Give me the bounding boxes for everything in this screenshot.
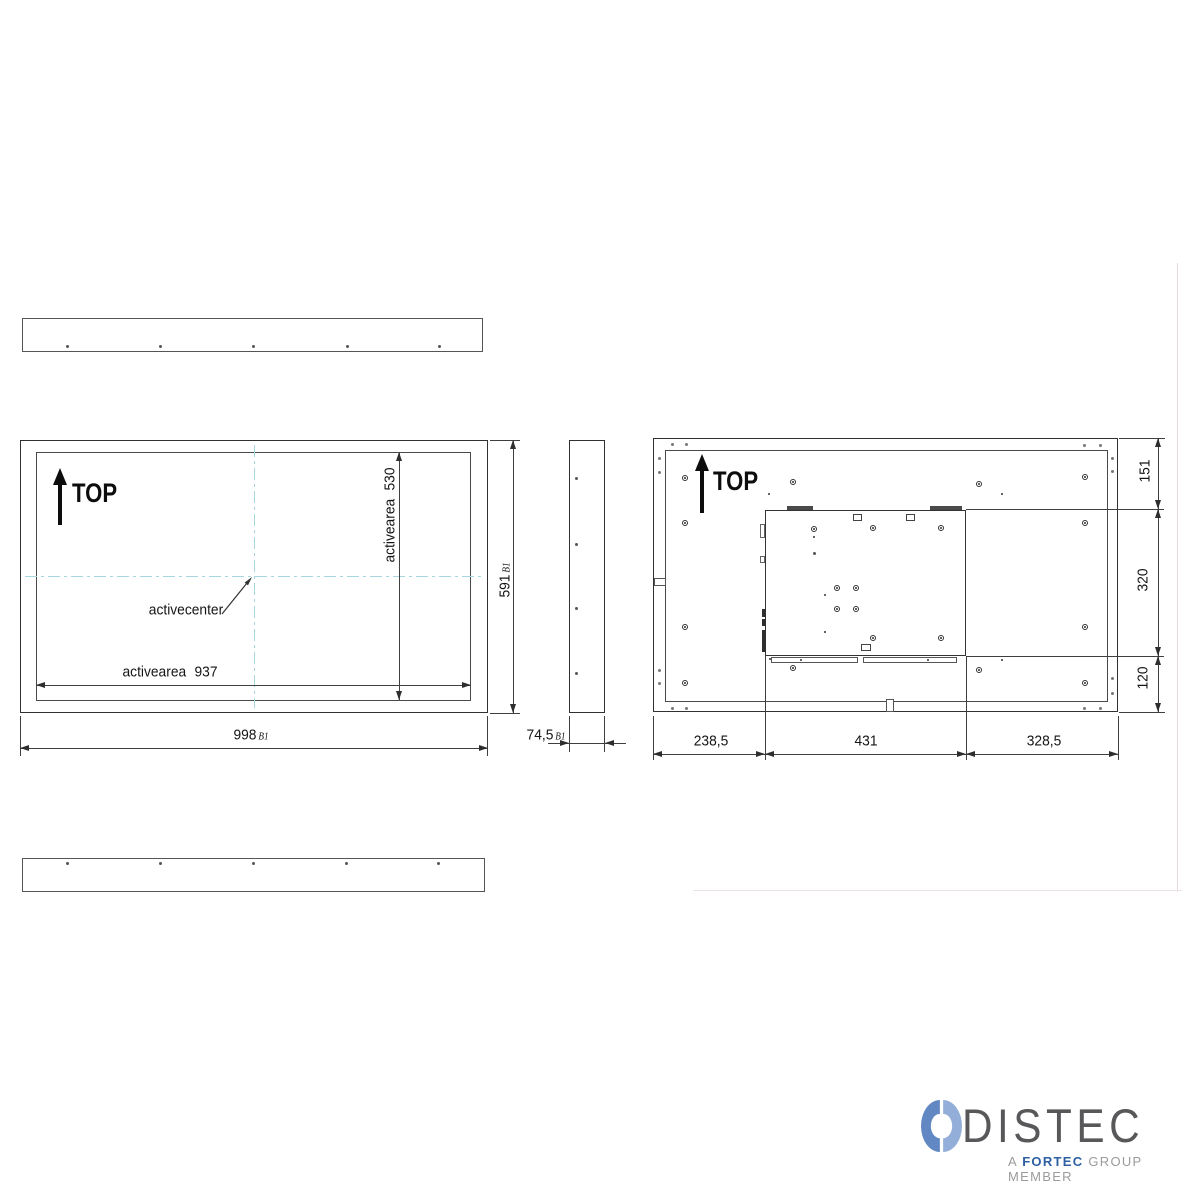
rim-screw-hole bbox=[658, 669, 661, 672]
back-left-edge-notch bbox=[654, 578, 666, 586]
dim-back-bottom-238: 238,5 bbox=[694, 733, 729, 750]
dimension-arrow bbox=[396, 691, 402, 700]
dimension-arrow bbox=[1155, 509, 1161, 518]
tagline-a: A bbox=[1008, 1154, 1017, 1169]
screw-hole bbox=[938, 635, 944, 641]
box-hinge-bar-left bbox=[787, 506, 813, 510]
distec-logo-text: DISTEC bbox=[962, 1102, 1144, 1149]
box-bottom-rail-left bbox=[771, 657, 858, 663]
screw-hole bbox=[976, 667, 982, 673]
faint-horizontal-line bbox=[693, 890, 1182, 891]
rim-screw-hole bbox=[1083, 707, 1086, 710]
screw-hole bbox=[870, 525, 876, 531]
screw-hole bbox=[853, 585, 859, 591]
back-top-label: TOP bbox=[713, 468, 758, 495]
screw-hole bbox=[682, 475, 688, 481]
distec-logo-icon bbox=[921, 1100, 962, 1152]
rim-screw-hole bbox=[671, 443, 674, 446]
rim-screw-hole bbox=[658, 457, 661, 460]
dimension-arrow bbox=[1155, 656, 1161, 665]
dimension-arrow bbox=[1155, 647, 1161, 656]
dimension-arrow bbox=[396, 452, 402, 461]
back-top-arrow-shaft bbox=[700, 470, 704, 513]
mounting-hole bbox=[66, 345, 69, 348]
dimension-line bbox=[966, 656, 1164, 657]
dimension-arrow bbox=[36, 682, 45, 688]
box-connector-3 bbox=[762, 609, 766, 617]
dimension-arrow bbox=[653, 751, 662, 757]
screw-hole bbox=[1082, 474, 1088, 480]
dim-back-right-320: 320 bbox=[1135, 568, 1152, 591]
dimension-line bbox=[1118, 716, 1119, 760]
box-connector-5 bbox=[762, 630, 766, 652]
screw-hole bbox=[938, 525, 944, 531]
rim-screw-hole bbox=[1111, 470, 1114, 473]
dimension-line bbox=[569, 716, 570, 752]
dim-front-width: 998B1 bbox=[233, 727, 268, 744]
dimension-line bbox=[966, 656, 967, 760]
dimension-arrow bbox=[756, 751, 765, 757]
screw-hole bbox=[790, 479, 796, 485]
dim-back-right-151: 151 bbox=[1137, 459, 1154, 482]
dimension-line bbox=[966, 509, 1164, 510]
screw-hole bbox=[811, 526, 817, 532]
dimension-arrow bbox=[1109, 751, 1118, 757]
dimension-line bbox=[604, 716, 605, 752]
dim-back-bottom-328: 328,5 bbox=[1027, 733, 1062, 750]
box-hinge-bar-right bbox=[930, 506, 962, 510]
front-top-arrow-shaft bbox=[58, 484, 62, 525]
rim-screw-hole bbox=[1083, 444, 1086, 447]
box-connector-1 bbox=[760, 524, 765, 538]
tagline-fortec: FORTEC bbox=[1022, 1154, 1083, 1169]
faint-vertical-line bbox=[1177, 263, 1178, 892]
screw-hole bbox=[790, 665, 796, 671]
screw-hole bbox=[1082, 624, 1088, 630]
rim-screw-hole bbox=[671, 707, 674, 710]
screw-hole bbox=[870, 635, 876, 641]
box-connector-4 bbox=[762, 619, 766, 626]
dimension-arrow bbox=[765, 751, 774, 757]
dim-back-bottom-431: 431 bbox=[854, 733, 877, 750]
screw-hole bbox=[682, 520, 688, 526]
small-hole bbox=[769, 658, 771, 660]
mounting-hole bbox=[252, 345, 255, 348]
dimension-line bbox=[653, 754, 1118, 755]
activecenter-leader bbox=[221, 573, 257, 615]
dimension-line bbox=[490, 713, 520, 714]
screw-hole bbox=[976, 481, 982, 487]
small-hole bbox=[824, 594, 826, 596]
back-bottom-center-notch bbox=[886, 699, 894, 712]
mounting-hole bbox=[66, 862, 69, 865]
mounting-hole bbox=[575, 543, 578, 546]
mounting-hole bbox=[438, 345, 441, 348]
dimension-arrow bbox=[605, 740, 614, 746]
screw-hole bbox=[834, 585, 840, 591]
front-top-label: TOP bbox=[72, 480, 117, 507]
small-hole bbox=[927, 659, 929, 661]
dimension-arrow bbox=[510, 704, 516, 713]
small-hole bbox=[813, 536, 815, 538]
mounting-hole bbox=[575, 672, 578, 675]
rim-screw-hole bbox=[658, 471, 661, 474]
mounting-hole bbox=[159, 862, 162, 865]
mounting-hole bbox=[575, 607, 578, 610]
small-hole bbox=[800, 659, 802, 661]
dim-front-height: 591B1 bbox=[497, 562, 514, 597]
dimension-line bbox=[20, 748, 488, 749]
dimension-arrow bbox=[1155, 438, 1161, 447]
dimension-arrow bbox=[510, 440, 516, 449]
dimension-arrow bbox=[462, 682, 471, 688]
front-top-arrow-icon bbox=[53, 468, 67, 485]
dimension-arrow bbox=[957, 751, 966, 757]
mounting-hole bbox=[159, 345, 162, 348]
rim-screw-hole bbox=[658, 682, 661, 685]
screw-hole bbox=[682, 624, 688, 630]
mounting-hole bbox=[345, 862, 348, 865]
distec-logo-tagline: A FORTEC GROUP MEMBER bbox=[1008, 1154, 1200, 1184]
box-bottom-rail-right bbox=[863, 657, 957, 663]
dimension-line bbox=[399, 452, 400, 700]
dim-back-right-120: 120 bbox=[1135, 666, 1152, 689]
rim-screw-hole bbox=[1111, 692, 1114, 695]
small-hole bbox=[1001, 493, 1003, 495]
small-hole bbox=[824, 631, 826, 633]
electronics-box bbox=[765, 510, 966, 656]
screw-hole bbox=[834, 606, 840, 612]
dimension-arrow bbox=[1155, 500, 1161, 509]
rim-screw-hole bbox=[1111, 677, 1114, 680]
technical-drawing-sheet: TOP activearea530 activecenter activeare… bbox=[0, 0, 1200, 1200]
dimension-line bbox=[1158, 438, 1159, 713]
dimension-arrow bbox=[560, 740, 569, 746]
screw-hole bbox=[1082, 680, 1088, 686]
mounting-hole bbox=[437, 862, 440, 865]
rim-screw-hole bbox=[1111, 457, 1114, 460]
rim-screw-hole bbox=[685, 707, 688, 710]
mounting-hole bbox=[813, 552, 816, 555]
small-hole bbox=[768, 493, 770, 495]
screw-hole bbox=[853, 606, 859, 612]
mounting-hole bbox=[252, 862, 255, 865]
back-top-arrow-icon bbox=[695, 454, 709, 471]
screw-hole bbox=[1082, 520, 1088, 526]
dimension-line bbox=[513, 440, 514, 714]
dimension-arrow bbox=[20, 745, 29, 751]
dimension-line bbox=[765, 656, 766, 760]
dimension-line bbox=[36, 685, 471, 686]
rim-screw-hole bbox=[1099, 444, 1102, 447]
small-hole bbox=[1001, 659, 1003, 661]
label-activecenter: activecenter bbox=[149, 602, 223, 619]
rim-screw-hole bbox=[685, 443, 688, 446]
dimension-arrow bbox=[966, 751, 975, 757]
rim-screw-hole bbox=[1099, 707, 1102, 710]
dim-activearea-height: activearea530 bbox=[382, 468, 399, 563]
dim-activearea-width: activearea937 bbox=[123, 664, 218, 681]
mounting-hole bbox=[575, 477, 578, 480]
mounting-hole bbox=[346, 345, 349, 348]
dimension-arrow bbox=[1155, 703, 1161, 712]
box-connector-2 bbox=[760, 556, 765, 563]
box-cutout-top-left bbox=[853, 514, 862, 521]
dimension-arrow bbox=[479, 745, 488, 751]
screw-hole bbox=[682, 680, 688, 686]
box-cutout-bottom bbox=[861, 644, 871, 651]
box-cutout-top-right bbox=[906, 514, 915, 521]
